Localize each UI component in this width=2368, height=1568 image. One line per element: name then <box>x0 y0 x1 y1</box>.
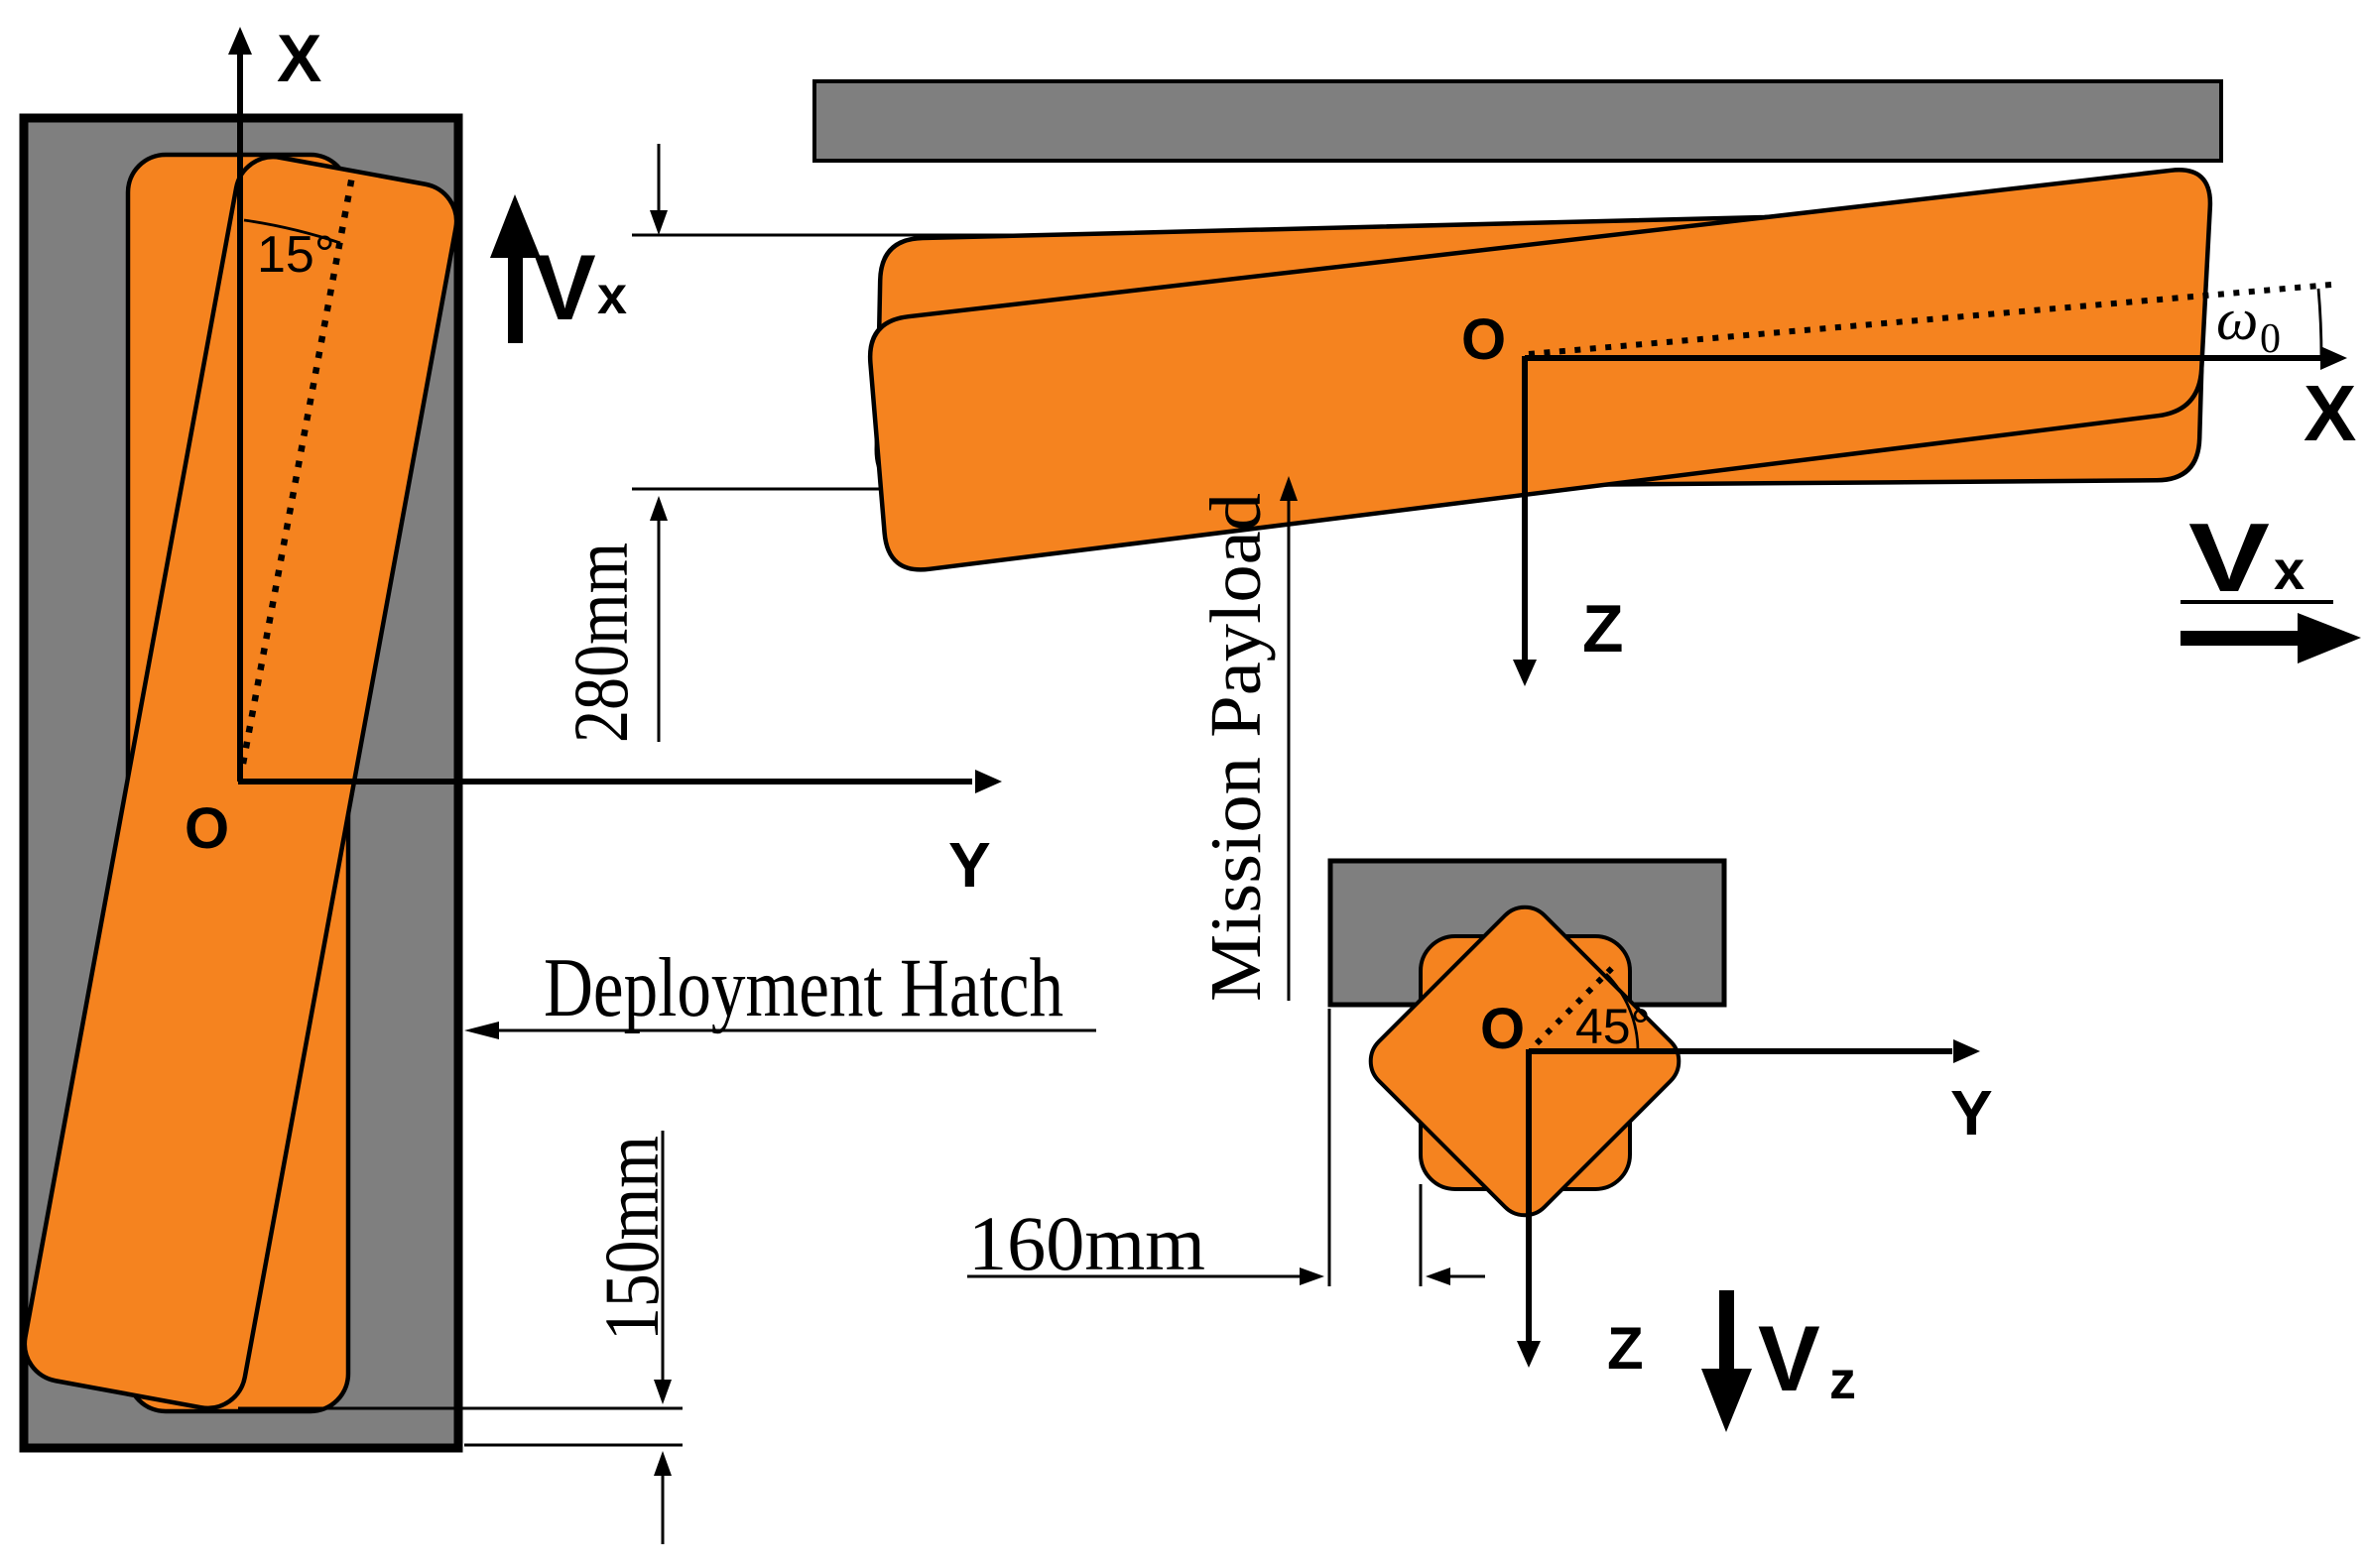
svg-text:V: V <box>534 235 596 339</box>
svg-text:Y: Y <box>1950 1077 1993 1148</box>
svg-text:O: O <box>1480 997 1525 1061</box>
svg-text:0: 0 <box>2260 316 2281 362</box>
svg-text:X: X <box>277 21 321 96</box>
svg-text:O: O <box>1461 307 1506 372</box>
svg-text:O: O <box>185 796 229 861</box>
svg-text:160mm: 160mm <box>968 1200 1205 1286</box>
svg-text:V: V <box>1758 1306 1820 1410</box>
svg-text:15°: 15° <box>257 226 335 284</box>
svg-text:150mm: 150mm <box>588 1136 675 1341</box>
svg-text:Z: Z <box>1582 591 1624 666</box>
svg-text:V: V <box>2188 503 2270 612</box>
svg-text:Y: Y <box>948 829 991 901</box>
svg-text:z: z <box>1829 1351 1856 1410</box>
svg-text:X: X <box>2304 369 2356 457</box>
svg-text:Mission Payload: Mission Payload <box>1195 493 1276 1002</box>
svg-text:x: x <box>597 266 627 325</box>
svg-text:Z: Z <box>1607 1315 1644 1382</box>
svg-text:45°: 45° <box>1575 999 1651 1054</box>
svg-text:x: x <box>2274 539 2305 601</box>
svg-text:280mm: 280mm <box>558 543 644 743</box>
svg-text:ω: ω <box>2216 287 2258 352</box>
svg-text:Deployment Hatch: Deployment Hatch <box>544 941 1063 1034</box>
